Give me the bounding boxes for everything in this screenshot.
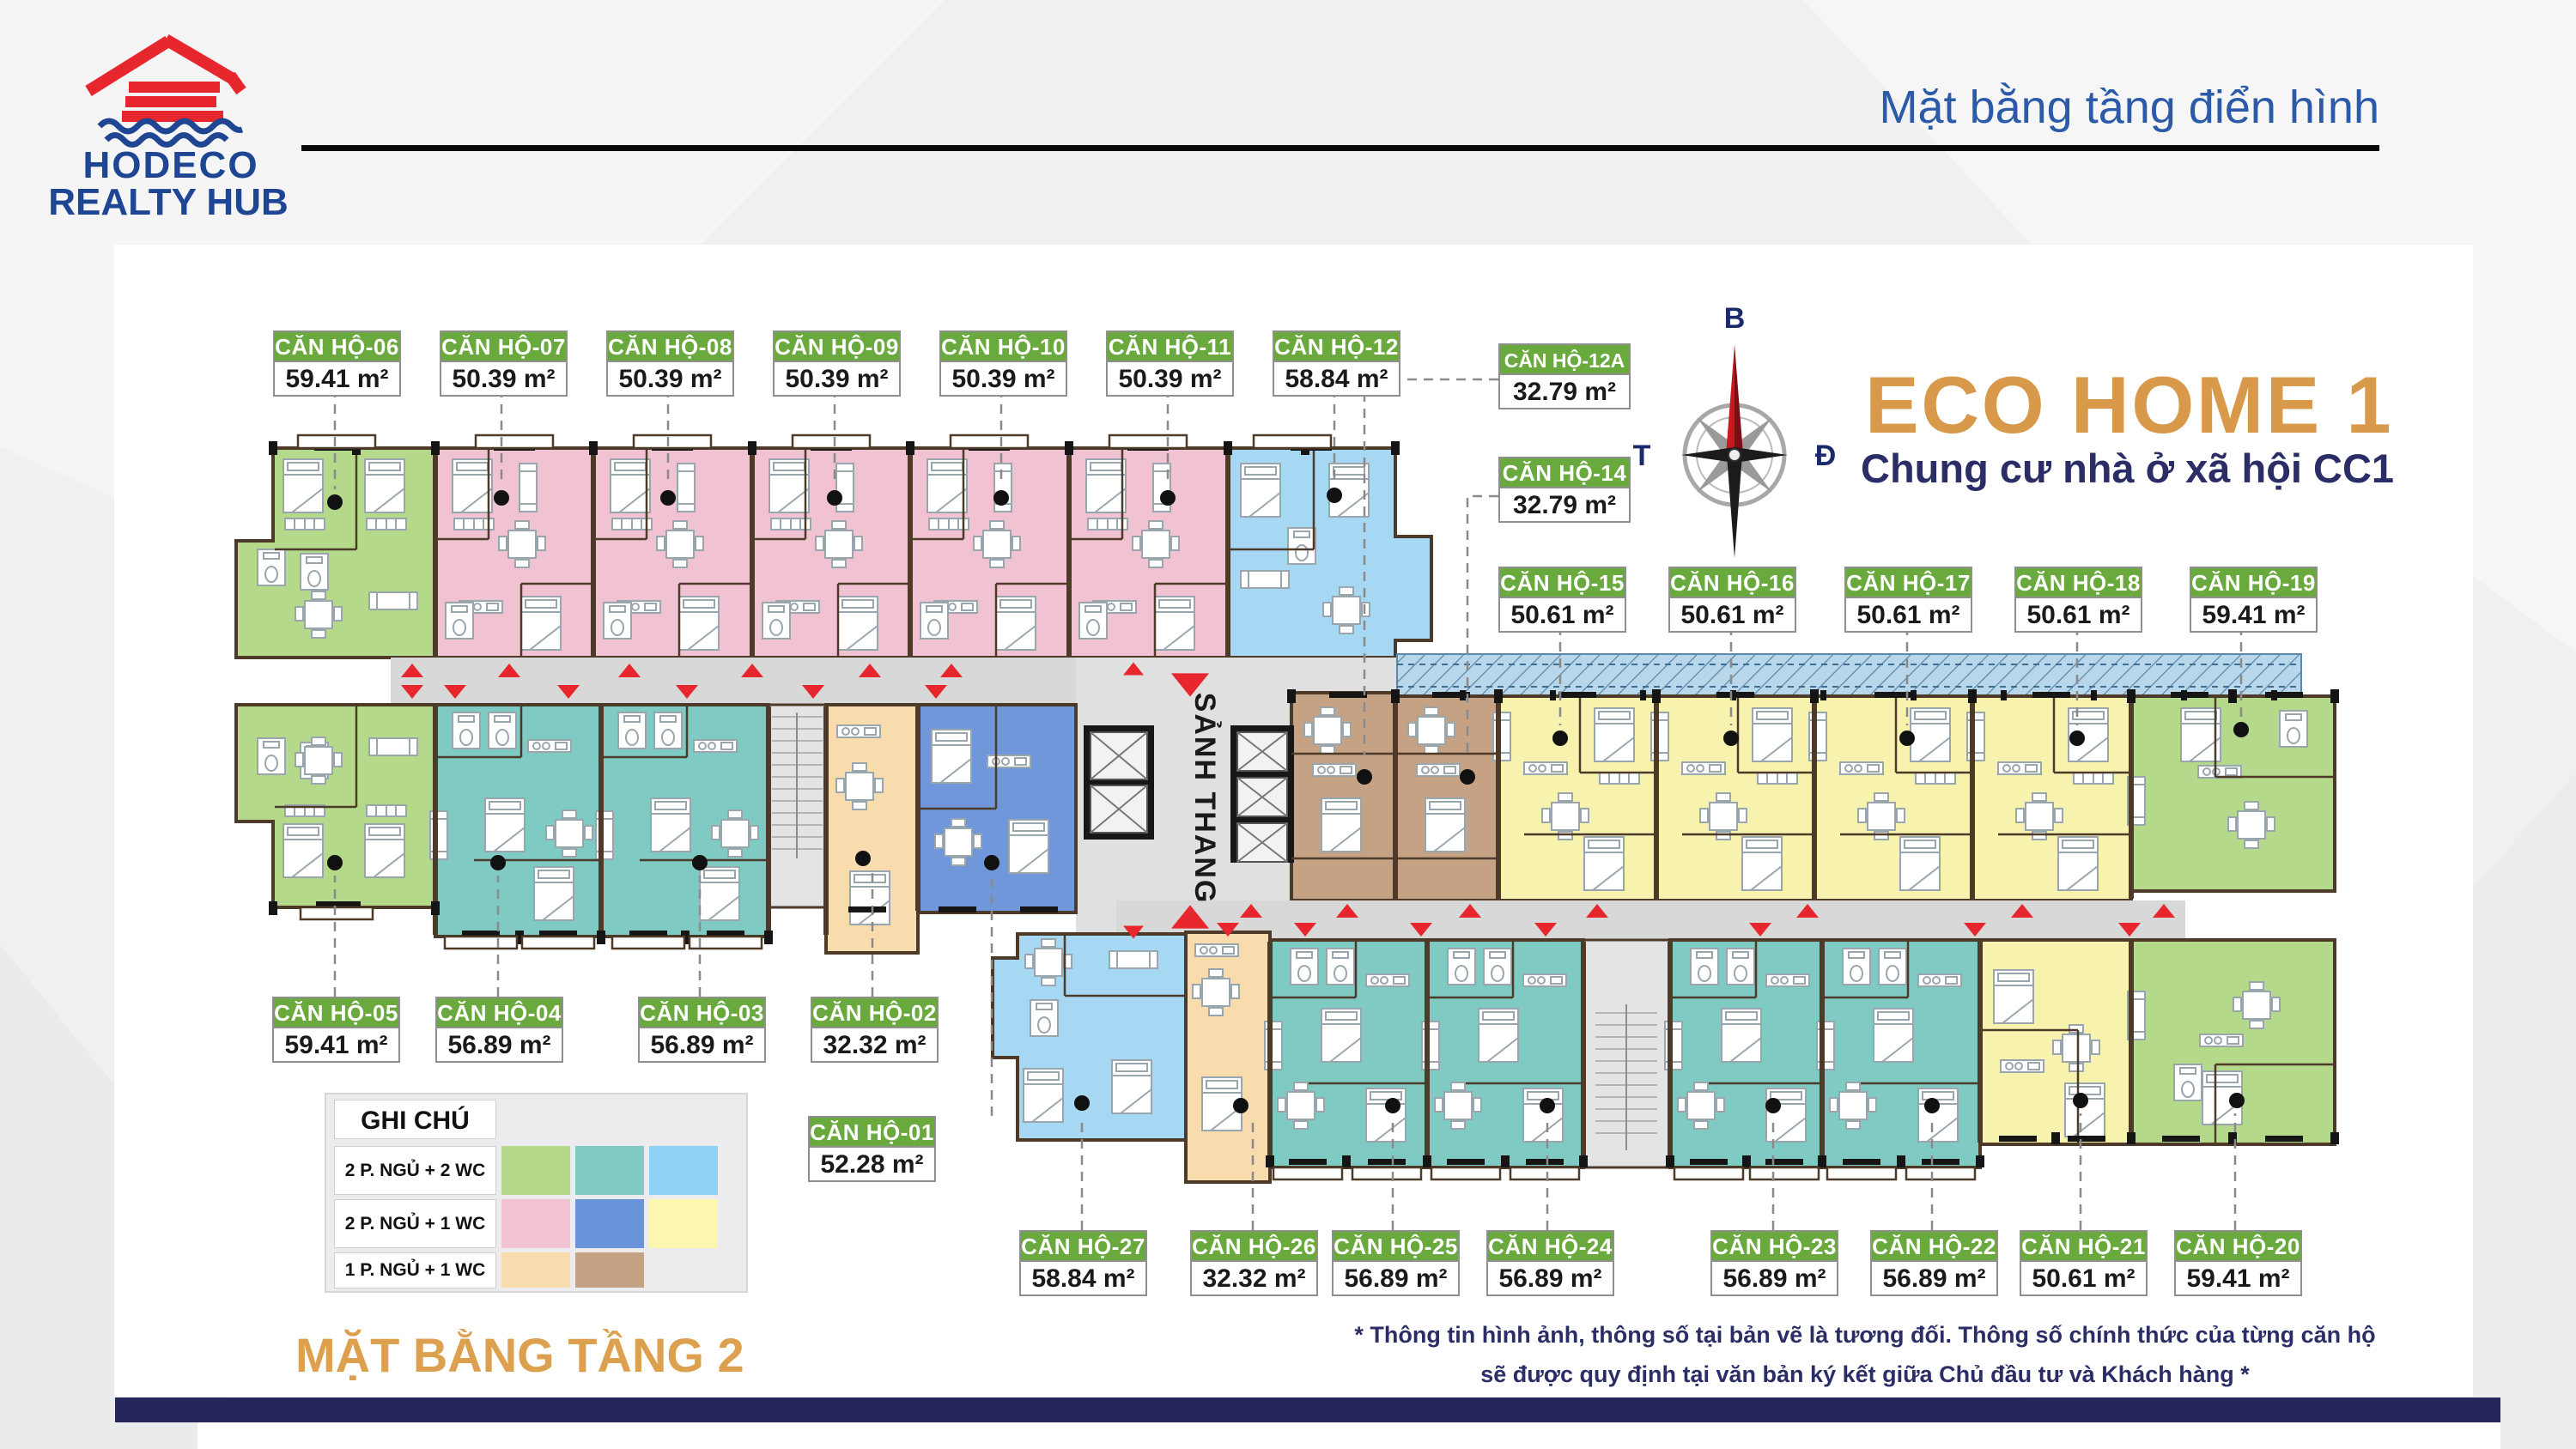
svg-text:Đ: Đ	[1815, 440, 1837, 472]
svg-text:SẢNH THANG: SẢNH THANG	[1188, 693, 1221, 905]
svg-text:B: B	[1724, 302, 1746, 335]
svg-text:T: T	[1633, 440, 1651, 472]
